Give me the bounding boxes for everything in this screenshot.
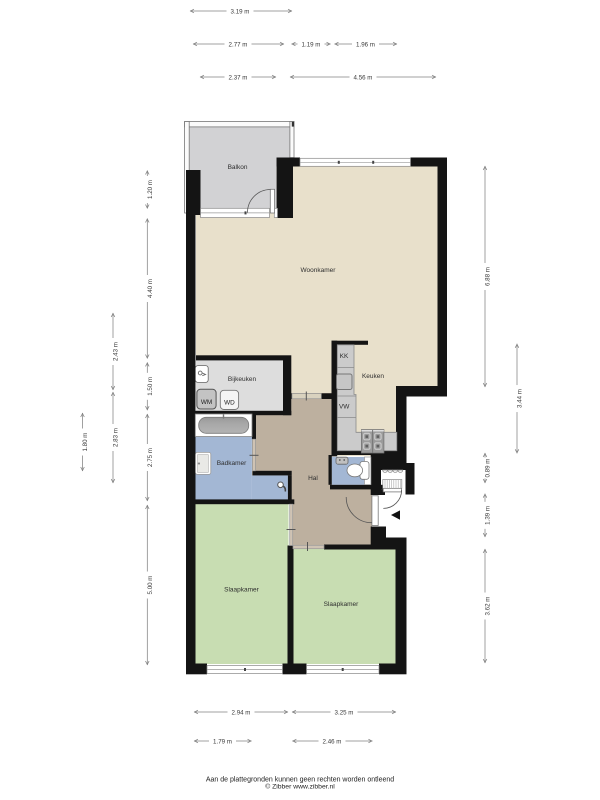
svg-text:VW: VW bbox=[339, 404, 350, 411]
svg-text:Keuken: Keuken bbox=[362, 373, 384, 380]
svg-text:3.44 m: 3.44 m bbox=[517, 389, 524, 408]
svg-text:3.62 m: 3.62 m bbox=[485, 597, 492, 616]
svg-text:3.25 m: 3.25 m bbox=[335, 709, 354, 716]
svg-text:6.88 m: 6.88 m bbox=[485, 267, 492, 286]
svg-text:2.43 m: 2.43 m bbox=[113, 342, 120, 361]
svg-text:1.20 m: 1.20 m bbox=[147, 180, 154, 199]
svg-text:2.94 m: 2.94 m bbox=[232, 709, 251, 716]
svg-text:2.75 m: 2.75 m bbox=[147, 448, 154, 467]
svg-text:1.39 m: 1.39 m bbox=[485, 506, 492, 525]
svg-text:WD: WD bbox=[224, 400, 235, 407]
svg-text:0.89 m: 0.89 m bbox=[485, 459, 492, 478]
svg-text:2.37 m: 2.37 m bbox=[229, 74, 248, 81]
svg-text:3.19 m: 3.19 m bbox=[231, 8, 250, 15]
svg-text:Bijkeuken: Bijkeuken bbox=[228, 376, 257, 383]
svg-text:© Zibber www.zibber.nl: © Zibber www.zibber.nl bbox=[265, 783, 335, 791]
svg-text:1.96 m: 1.96 m bbox=[356, 41, 375, 48]
svg-text:2.83 m: 2.83 m bbox=[113, 428, 120, 447]
svg-text:4.40 m: 4.40 m bbox=[147, 279, 154, 298]
svg-text:Slaapkamer: Slaapkamer bbox=[324, 601, 360, 608]
svg-text:Woonkamer: Woonkamer bbox=[301, 267, 337, 274]
svg-text:Badkamer: Badkamer bbox=[217, 460, 247, 467]
svg-text:Hal: Hal bbox=[308, 475, 318, 482]
svg-text:1.79 m: 1.79 m bbox=[213, 738, 232, 745]
svg-text:1.50 m: 1.50 m bbox=[147, 377, 154, 396]
svg-text:WM: WM bbox=[201, 399, 212, 406]
svg-text:1.19 m: 1.19 m bbox=[302, 41, 321, 48]
svg-text:4.56 m: 4.56 m bbox=[354, 74, 373, 81]
svg-text:5.00 m: 5.00 m bbox=[147, 576, 154, 595]
svg-text:2.46 m: 2.46 m bbox=[323, 738, 342, 745]
svg-text:Aan de plattegronden kunnen ge: Aan de plattegronden kunnen geen rechten… bbox=[206, 777, 394, 784]
svg-text:2.77 m: 2.77 m bbox=[229, 41, 248, 48]
svg-text:KK: KK bbox=[340, 353, 349, 360]
svg-text:Slaapkamer: Slaapkamer bbox=[224, 587, 260, 594]
svg-text:Balkon: Balkon bbox=[228, 164, 248, 171]
svg-text:1.80 m: 1.80 m bbox=[82, 433, 89, 452]
